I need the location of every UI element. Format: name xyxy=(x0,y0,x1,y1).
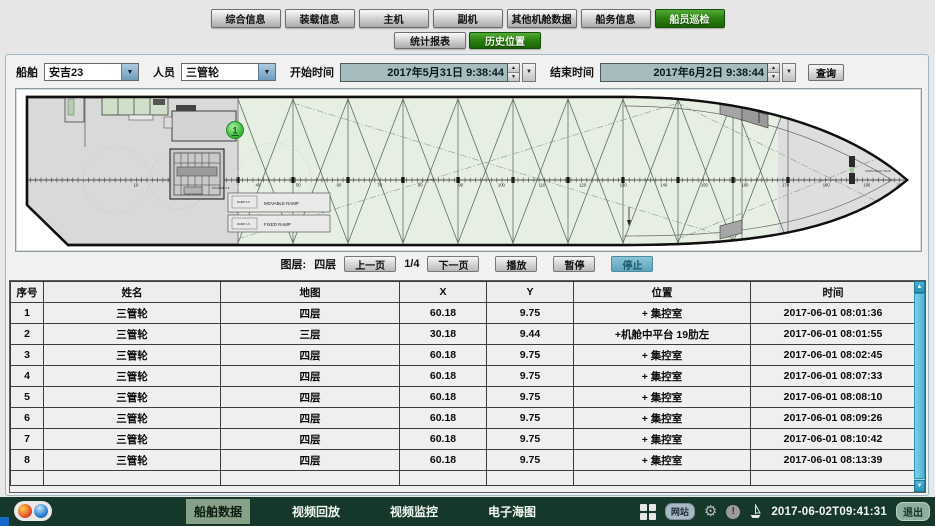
page-indicator: 1/4 xyxy=(404,258,419,270)
logo-sail-icon xyxy=(34,504,48,518)
start-time-spinner[interactable]: ▲▼ xyxy=(508,63,520,82)
ship-alarm-icon[interactable] xyxy=(749,504,762,519)
table-cell: 60.18 xyxy=(400,303,487,324)
table-cell: 9.44 xyxy=(487,324,574,345)
table-cell: 四层 xyxy=(221,387,400,408)
taskbar-nav: 船舶数据 视频回放 视频监控 电子海图 xyxy=(186,497,544,526)
taskbar-item-video-monitor[interactable]: 视频监控 xyxy=(382,499,446,524)
column-header: 位置 xyxy=(574,282,751,303)
tab-aux-engine[interactable]: 副机 xyxy=(433,9,503,28)
svg-text:70: 70 xyxy=(377,183,382,188)
svg-text:110: 110 xyxy=(539,183,546,188)
table-cell: + 集控室 xyxy=(574,408,751,429)
svg-text:80: 80 xyxy=(418,183,423,188)
table-cell: 三管轮 xyxy=(44,345,221,366)
layout-grid-icon[interactable] xyxy=(640,504,656,520)
column-header: X xyxy=(400,282,487,303)
table-row[interactable]: 7三管轮四层60.189.75+ 集控室2017-06-01 08:10:42 xyxy=(11,429,916,450)
column-header: Y xyxy=(487,282,574,303)
end-time-picker[interactable]: 2017年6月2日 9:38:44 ▲▼ ▼ xyxy=(600,63,796,82)
svg-text:150: 150 xyxy=(701,183,709,188)
column-header: 序号 xyxy=(11,282,44,303)
scroll-down-icon[interactable]: ▼ xyxy=(914,480,925,492)
table-cell: + 集控室 xyxy=(574,450,751,471)
table-cell: 三管轮 xyxy=(44,408,221,429)
taskbar-item-ship-data[interactable]: 船舶数据 xyxy=(186,499,250,524)
table-cell: 60.18 xyxy=(400,345,487,366)
table-row[interactable]: 6三管轮四层60.189.75+ 集控室2017-06-01 08:09:26 xyxy=(11,408,916,429)
table-cell: 60.18 xyxy=(400,450,487,471)
table-cell: 2017-06-01 08:02:45 xyxy=(751,345,916,366)
table-scrollbar[interactable]: ▲ ▼ xyxy=(914,281,925,492)
table-cell: 9.75 xyxy=(487,303,574,324)
end-time-value[interactable]: 2017年6月2日 9:38:44 xyxy=(600,63,768,82)
svg-text:130: 130 xyxy=(620,183,628,188)
app-logo[interactable] xyxy=(14,501,52,521)
tab-ship-affairs[interactable]: 船务信息 xyxy=(581,9,651,28)
svg-text:170: 170 xyxy=(782,183,790,188)
column-header: 地图 xyxy=(221,282,400,303)
svg-text:190: 190 xyxy=(863,183,871,188)
table-cell: 9.75 xyxy=(487,387,574,408)
table-cell: + 集控室 xyxy=(574,429,751,450)
svg-text:UP RAMP 4-5: UP RAMP 4-5 xyxy=(212,186,230,190)
spin-up-icon[interactable]: ▲ xyxy=(768,64,779,72)
play-button[interactable]: 播放 xyxy=(495,256,537,272)
fixed-ramp-label: FIXED RAMP xyxy=(264,222,291,227)
column-header: 姓名 xyxy=(44,282,221,303)
svg-text:60: 60 xyxy=(337,183,342,188)
table-cell: + 集控室 xyxy=(574,387,751,408)
table-cell: 3 xyxy=(11,345,44,366)
table-cell: 9.75 xyxy=(487,408,574,429)
table-cell: 9.75 xyxy=(487,366,574,387)
spin-up-icon[interactable]: ▲ xyxy=(508,64,519,72)
top-tab-area: 综合信息 装载信息 主机 副机 其他机舱数据 船务信息 船员巡检 统计报表 历史… xyxy=(0,0,935,53)
table-cell: 三管轮 xyxy=(44,303,221,324)
ship-select[interactable]: 安吉23 ▼ xyxy=(44,63,139,81)
alert-icon[interactable]: ! xyxy=(726,505,740,519)
chevron-down-icon[interactable]: ▼ xyxy=(121,64,138,80)
movable-ramp-label: MOVABLE RAMP xyxy=(264,201,299,206)
table-cell: 60.18 xyxy=(400,366,487,387)
history-table-wrap: 序号姓名地图XY位置时间 1三管轮四层60.189.75+ 集控室2017-06… xyxy=(9,280,926,493)
table-cell: 三管轮 xyxy=(44,450,221,471)
table-cell: 2017-06-01 08:10:42 xyxy=(751,429,916,450)
svg-text:90: 90 xyxy=(458,183,463,188)
website-badge[interactable]: 网站 xyxy=(665,503,695,520)
table-cell: 四层 xyxy=(221,429,400,450)
tab-main-engine[interactable]: 主机 xyxy=(359,9,429,28)
table-cell: 9.75 xyxy=(487,429,574,450)
table-cell: 三层 xyxy=(221,324,400,345)
chevron-down-icon[interactable]: ▼ xyxy=(258,64,275,80)
start-time-picker[interactable]: 2017年5月31日 9:38:44 ▲▼ ▼ xyxy=(340,63,536,82)
tab-loading-info[interactable]: 装载信息 xyxy=(285,9,355,28)
scroll-up-icon[interactable]: ▲ xyxy=(914,281,925,293)
main-tab-bar: 综合信息 装载信息 主机 副机 其他机舱数据 船务信息 船员巡检 xyxy=(0,9,935,28)
svg-text:180: 180 xyxy=(823,183,831,188)
end-time-spinner[interactable]: ▲▼ xyxy=(768,63,780,82)
svg-text:140: 140 xyxy=(660,183,668,188)
chevron-down-icon[interactable]: ▼ xyxy=(782,63,796,82)
tab-statistics-report[interactable]: 统计报表 xyxy=(394,32,466,49)
tab-history-position[interactable]: 历史位置 xyxy=(469,32,541,49)
table-header-row: 序号姓名地图XY位置时间 xyxy=(11,282,916,303)
table-cell: 60.18 xyxy=(400,429,487,450)
taskbar-item-video-playback[interactable]: 视频回放 xyxy=(284,499,348,524)
table-cell: +机舱中平台 19肋左 xyxy=(574,324,751,345)
table-row[interactable]: 8三管轮四层60.189.75+ 集控室2017-06-01 08:13:39 xyxy=(11,450,916,471)
table-cell: 2017-06-01 08:01:36 xyxy=(751,303,916,324)
next-page-button[interactable]: 下一页 xyxy=(427,256,479,272)
table-cell: 1 xyxy=(11,303,44,324)
person-marker[interactable]: 1 xyxy=(227,122,244,139)
table-cell: 2017-06-01 08:07:33 xyxy=(751,366,916,387)
table-cell: 三管轮 xyxy=(44,366,221,387)
table-cell: 5 xyxy=(11,387,44,408)
ship-deck-plan-svg: 1020304050607080901001101201301401501601… xyxy=(16,89,921,251)
table-cell: 2017-06-01 08:09:26 xyxy=(751,408,916,429)
marker-number: 1 xyxy=(232,126,237,136)
taskbar: 船舶数据 视频回放 视频监控 电子海图 网站 ⚙ ! 2017-06-02T09… xyxy=(0,497,935,526)
table-cell: 三管轮 xyxy=(44,324,221,345)
scrollbar-thumb[interactable] xyxy=(914,293,925,479)
ramp-labels: RAMP 4-5 RAMP 4-5 MOVABLE RAMP FIXED RAM… xyxy=(212,186,330,232)
table-row[interactable]: 1三管轮四层60.189.75+ 集控室2017-06-01 08:01:36 xyxy=(11,303,916,324)
table-cell: 三管轮 xyxy=(44,429,221,450)
taskbar-right: 网站 ⚙ ! 2017-06-02T09:41:31 退出 xyxy=(640,497,930,526)
ship-select-value: 安吉23 xyxy=(45,64,121,80)
table-cell: 三管轮 xyxy=(44,387,221,408)
tab-other-engine-data[interactable]: 其他机舱数据 xyxy=(507,9,577,28)
table-cell: + 集控室 xyxy=(574,366,751,387)
table-cell: 四层 xyxy=(221,303,400,324)
svg-text:10: 10 xyxy=(134,183,139,188)
table-cell: 60.18 xyxy=(400,408,487,429)
person-label: 人员 xyxy=(153,64,175,80)
deck-plan-map[interactable]: 1020304050607080901001101201301401501601… xyxy=(15,88,922,252)
start-time-label: 开始时间 xyxy=(290,64,334,80)
svg-text:40: 40 xyxy=(255,183,260,188)
chevron-down-icon[interactable]: ▼ xyxy=(522,63,536,82)
taskbar-clock: 2017-06-02T09:41:31 xyxy=(771,506,887,518)
svg-text:50: 50 xyxy=(296,183,301,188)
table-cell: 四层 xyxy=(221,450,400,471)
table-cell: 2017-06-01 08:01:55 xyxy=(751,324,916,345)
svg-text:160: 160 xyxy=(742,183,750,188)
table-cell: + 集控室 xyxy=(574,345,751,366)
svg-text:120: 120 xyxy=(579,183,587,188)
svg-text:100: 100 xyxy=(498,183,506,188)
table-cell: 4 xyxy=(11,366,44,387)
table-row[interactable]: 4三管轮四层60.189.75+ 集控室2017-06-01 08:07:33 xyxy=(11,366,916,387)
table-row[interactable]: 3三管轮四层60.189.75+ 集控室2017-06-01 08:02:45 xyxy=(11,345,916,366)
query-button[interactable]: 查询 xyxy=(808,64,844,81)
engine-casing xyxy=(170,149,224,199)
filter-row: 船舶 安吉23 ▼ 人员 三管轮 ▼ 开始时间 2017年5月31日 9:38:… xyxy=(16,60,844,84)
stop-button[interactable]: 停止 xyxy=(611,256,653,272)
table-cell: 9.75 xyxy=(487,450,574,471)
table-cell: 9.75 xyxy=(487,345,574,366)
layer-label: 图层: xyxy=(281,256,307,272)
person-select[interactable]: 三管轮 ▼ xyxy=(181,63,276,81)
tab-crew-inspection[interactable]: 船员巡检 xyxy=(655,9,725,28)
sub-tab-bar: 统计报表 历史位置 xyxy=(0,32,935,49)
tab-general-info[interactable]: 综合信息 xyxy=(211,9,281,28)
exit-button[interactable]: 退出 xyxy=(896,502,930,521)
table-cell: 2017-06-01 08:13:39 xyxy=(751,450,916,471)
corner-blue-square xyxy=(0,517,9,526)
table-row-empty xyxy=(11,471,916,486)
table-cell: 30.18 xyxy=(400,324,487,345)
table-cell: 2017-06-01 08:08:10 xyxy=(751,387,916,408)
table-cell: 四层 xyxy=(221,408,400,429)
table-cell: 6 xyxy=(11,408,44,429)
table-row[interactable]: 5三管轮四层60.189.75+ 集控室2017-06-01 08:08:10 xyxy=(11,387,916,408)
taskbar-item-echart[interactable]: 电子海图 xyxy=(480,499,544,524)
gear-icon[interactable]: ⚙ xyxy=(704,504,717,519)
table-cell: 7 xyxy=(11,429,44,450)
svg-text:RAMP 4-5: RAMP 4-5 xyxy=(237,200,250,204)
ship-label: 船舶 xyxy=(16,64,38,80)
column-header: 时间 xyxy=(751,282,916,303)
table-cell: 四层 xyxy=(221,366,400,387)
spin-down-icon[interactable]: ▼ xyxy=(508,72,519,81)
end-time-label: 结束时间 xyxy=(550,64,594,80)
pause-button[interactable]: 暂停 xyxy=(553,256,595,272)
prev-page-button[interactable]: 上一页 xyxy=(344,256,396,272)
person-select-value: 三管轮 xyxy=(182,64,258,80)
table-cell: 四层 xyxy=(221,345,400,366)
fore-peak-label: FORE PEAK TANK xyxy=(865,169,891,173)
table-cell: 60.18 xyxy=(400,387,487,408)
map-pager-row: 图层: 四层 上一页 1/4 下一页 播放 暂停 停止 xyxy=(6,256,928,272)
start-time-value[interactable]: 2017年5月31日 9:38:44 xyxy=(340,63,508,82)
table-cell: 8 xyxy=(11,450,44,471)
spin-down-icon[interactable]: ▼ xyxy=(768,72,779,81)
content-panel: 船舶 安吉23 ▼ 人员 三管轮 ▼ 开始时间 2017年5月31日 9:38:… xyxy=(5,54,929,496)
table-cell: + 集控室 xyxy=(574,303,751,324)
table-row[interactable]: 2三管轮三层30.189.44+机舱中平台 19肋左2017-06-01 08:… xyxy=(11,324,916,345)
layer-value: 四层 xyxy=(314,256,336,272)
table-cell: 2 xyxy=(11,324,44,345)
logo-sun-icon xyxy=(18,504,32,518)
history-table: 序号姓名地图XY位置时间 1三管轮四层60.189.75+ 集控室2017-06… xyxy=(10,281,916,486)
svg-text:RAMP 4-5: RAMP 4-5 xyxy=(237,222,250,226)
